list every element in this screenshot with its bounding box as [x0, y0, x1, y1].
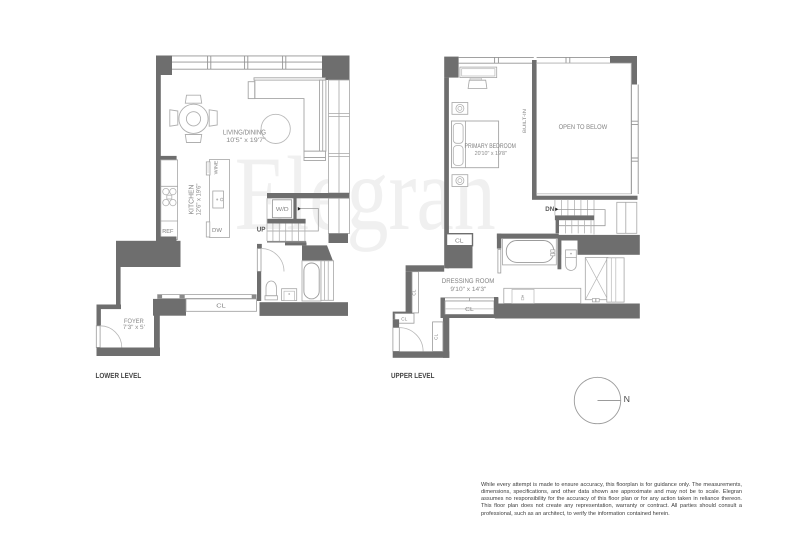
svg-text:CL: CL: [455, 238, 464, 245]
svg-text:WINE: WINE: [213, 161, 219, 175]
svg-text:10'5" x 19'7": 10'5" x 19'7": [226, 137, 265, 144]
svg-text:UPPER LEVEL: UPPER LEVEL: [391, 371, 435, 380]
svg-text:OPEN TO BELOW: OPEN TO BELOW: [559, 124, 608, 131]
svg-text:BUILT-IN: BUILT-IN: [522, 108, 528, 133]
svg-text:7'3" x 5': 7'3" x 5': [123, 324, 145, 331]
svg-text:DW: DW: [212, 228, 223, 234]
svg-text:N: N: [624, 394, 630, 404]
svg-text:UP: UP: [257, 227, 266, 234]
svg-text:DN: DN: [545, 206, 554, 213]
svg-text:LOWER LEVEL: LOWER LEVEL: [96, 371, 142, 380]
svg-text:LIVING/DINING: LIVING/DINING: [223, 128, 266, 136]
svg-text:CL: CL: [465, 306, 474, 313]
svg-text:9'10" x 14'3": 9'10" x 14'3": [450, 286, 486, 293]
svg-text:W/D: W/D: [276, 206, 289, 213]
svg-text:KITCHEN: KITCHEN: [188, 185, 195, 215]
svg-text:CL: CL: [434, 333, 439, 340]
svg-text:REF: REF: [162, 229, 174, 235]
svg-text:20'10" x 19'8": 20'10" x 19'8": [475, 150, 507, 157]
svg-text:CL: CL: [401, 317, 408, 322]
svg-text:12'6" x 19'6": 12'6" x 19'6": [196, 184, 203, 216]
svg-text:CL: CL: [216, 302, 226, 309]
svg-text:DRESSING ROOM: DRESSING ROOM: [442, 278, 495, 285]
svg-text:PRIMARY BEDROOM: PRIMARY BEDROOM: [465, 143, 517, 150]
svg-text:CL: CL: [411, 289, 416, 296]
